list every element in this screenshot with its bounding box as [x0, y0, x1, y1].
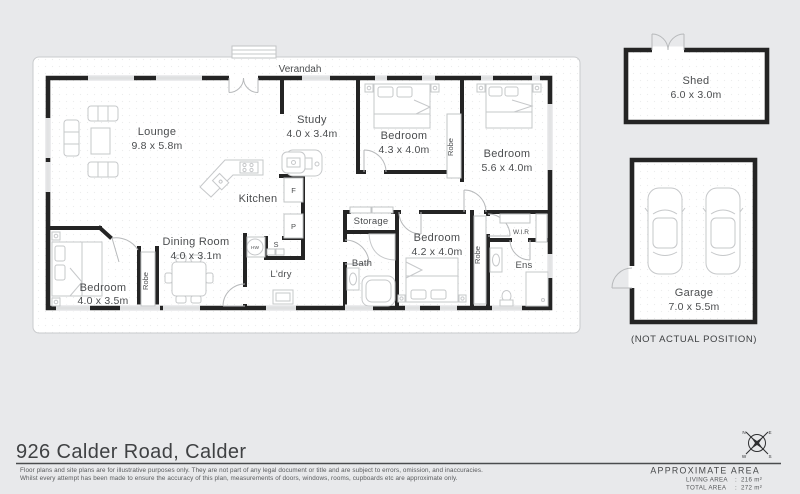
room-storage-name: Storage [354, 216, 389, 227]
room-bedroom56-dims: 5.6 x 4.0m [481, 162, 532, 174]
room-kitchen-name: Kitchen [239, 193, 278, 205]
verandah-label: Verandah [279, 64, 322, 75]
living-area-label: LIVING AREA [686, 477, 728, 484]
compass-s: S [768, 454, 771, 459]
floorplan-canvas: HW Verandah Lounge 9.8 x 5.8m Study 4.0 … [0, 0, 800, 494]
room-dining-dims: 4.0 x 3.1m [170, 250, 221, 262]
room-lounge-dims: 9.8 x 5.8m [131, 140, 182, 152]
robe-label-bed42: Robe [473, 246, 482, 264]
garage-dims: 7.0 x 5.5m [668, 301, 719, 313]
room-laundry-name: L'dry [270, 269, 291, 280]
disclaimer-line-2: Whilst every attempt has been made to en… [20, 475, 458, 482]
car-right [703, 188, 743, 274]
room-study-dims: 4.0 x 3.4m [286, 128, 337, 140]
living-area-colon: : [735, 477, 737, 484]
total-area-value: 272 m² [741, 485, 762, 492]
hot-water-label: HW [251, 245, 259, 251]
room-bedroom56-name: Bedroom [484, 148, 531, 160]
room-bedroom43-name: Bedroom [381, 130, 428, 142]
area-heading: APPROXIMATE AREA [650, 466, 760, 476]
pantry-label: P [291, 222, 296, 231]
room-bedroom42-dims: 4.2 x 4.0m [411, 246, 462, 258]
compass-e: E [768, 430, 771, 435]
bed-4-2 [398, 258, 466, 302]
room-bedroom43-dims: 4.3 x 4.0m [378, 144, 429, 156]
robe-label-bed40: Robe [141, 272, 150, 290]
disclaimer-line-1: Floor plans and site plans are for illus… [20, 467, 483, 474]
sink-label: S [273, 240, 278, 249]
room-bedroom40-dims: 4.0 x 3.5m [77, 295, 128, 307]
verandah-steps [232, 46, 276, 58]
total-area-colon: : [735, 485, 737, 492]
page-title: 926 Calder Road, Calder [16, 441, 246, 463]
robe-label-bed43: Robe [446, 138, 455, 156]
room-bedroom40-name: Bedroom [80, 282, 127, 294]
room-ensuite-name: Ens [516, 260, 533, 271]
room-wir-name: W.I.R [513, 229, 529, 236]
room-bath-name: Bath [352, 258, 372, 269]
bed-5-6 [477, 84, 541, 128]
garage-name: Garage [675, 287, 714, 299]
living-area-value: 216 m² [741, 477, 762, 484]
total-area-label: TOTAL AREA [686, 485, 727, 492]
floorplan-page: HW Verandah Lounge 9.8 x 5.8m Study 4.0 … [0, 0, 800, 494]
compass-w: W [742, 454, 747, 459]
shed-dims: 6.0 x 3.0m [670, 89, 721, 101]
garage: Garage 7.0 x 5.5m (NOT ACTUAL POSITION) [612, 160, 757, 345]
room-dining-name: Dining Room [163, 236, 230, 248]
garage-position-note: (NOT ACTUAL POSITION) [631, 334, 757, 345]
fridge-label: F [291, 186, 296, 195]
bed-4-3 [365, 84, 439, 128]
compass-n: N [742, 430, 745, 435]
shed-name: Shed [683, 75, 710, 87]
car-left [645, 188, 685, 274]
room-bedroom42-name: Bedroom [414, 232, 461, 244]
room-study-name: Study [297, 114, 327, 126]
room-lounge-name: Lounge [138, 126, 177, 138]
